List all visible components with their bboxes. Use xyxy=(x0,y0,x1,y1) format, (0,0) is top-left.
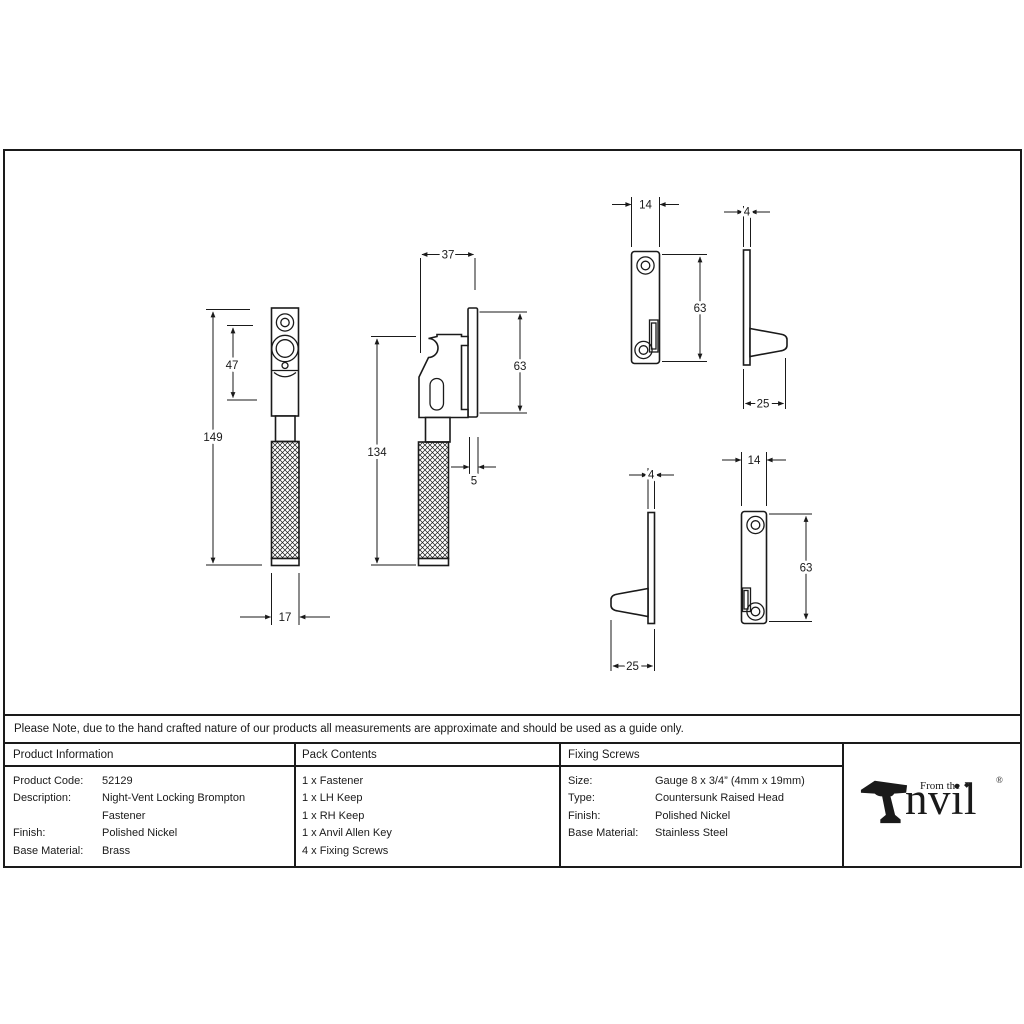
finish-label: Finish: xyxy=(13,825,102,842)
screw-type-row: Type: Countersunk Raised Head xyxy=(568,790,836,807)
pack-item: 1 x RH Keep xyxy=(302,808,552,825)
product-code-label: Product Code: xyxy=(13,773,102,790)
column-rule-3 xyxy=(842,742,844,868)
finish-row: Finish: Polished Nickel xyxy=(13,825,291,842)
column-rule-2 xyxy=(559,742,561,868)
base-material-value: Brass xyxy=(102,843,290,860)
screw-material-row: Base Material: Stainless Steel xyxy=(568,825,836,842)
sheet-border xyxy=(3,149,1022,868)
logo-prefix-text: From the◆ xyxy=(920,780,969,792)
from-the-anvil-logo: nvil From the◆ ® xyxy=(860,776,1018,828)
screw-size-row: Size: Gauge 8 x 3/4” (4mm x 19mm) xyxy=(568,773,836,790)
header-pack-contents: Pack Contents xyxy=(302,744,377,766)
diamond-icon: ◆ xyxy=(964,781,969,789)
product-information-cell: Product Code: 52129 Description: Night-V… xyxy=(13,773,291,860)
product-code-value: 52129 xyxy=(102,773,290,790)
screw-material-label: Base Material: xyxy=(568,825,655,842)
finish-value: Polished Nickel xyxy=(102,825,290,842)
description-label: Description: xyxy=(13,790,102,807)
screw-finish-row: Finish: Polished Nickel xyxy=(568,808,836,825)
pack-item: 1 x Anvil Allen Key xyxy=(302,825,552,842)
base-material-row: Base Material: Brass xyxy=(13,843,291,860)
header-fixing-screws: Fixing Screws xyxy=(568,744,640,766)
description-value: Night-Vent Locking Brompton Fastener xyxy=(102,790,290,825)
measurement-note: Please Note, due to the hand crafted nat… xyxy=(14,716,1004,743)
product-spec-sheet: 149 47 17 37 63 xyxy=(0,0,1024,1024)
pack-item: 1 x Fastener xyxy=(302,773,552,790)
pack-contents-cell: 1 x Fastener 1 x LH Keep 1 x RH Keep 1 x… xyxy=(302,773,552,860)
description-row: Description: Night-Vent Locking Brompton… xyxy=(13,790,291,825)
base-material-label: Base Material: xyxy=(13,843,102,860)
screw-material-value: Stainless Steel xyxy=(655,825,728,842)
fixing-screws-cell: Size: Gauge 8 x 3/4” (4mm x 19mm) Type: … xyxy=(568,773,836,843)
column-rule-1 xyxy=(294,742,296,868)
product-code-row: Product Code: 52129 xyxy=(13,773,291,790)
screw-type-label: Type: xyxy=(568,790,655,807)
anvil-icon xyxy=(860,777,908,825)
screw-finish-label: Finish: xyxy=(568,808,655,825)
header-bottom-rule xyxy=(3,765,844,767)
registered-mark: ® xyxy=(996,776,1003,785)
screw-size-label: Size: xyxy=(568,773,655,790)
pack-item: 4 x Fixing Screws xyxy=(302,843,552,860)
screw-type-value: Countersunk Raised Head xyxy=(655,790,784,807)
pack-item: 1 x LH Keep xyxy=(302,790,552,807)
header-product-information: Product Information xyxy=(13,744,113,766)
screw-size-value: Gauge 8 x 3/4” (4mm x 19mm) xyxy=(655,773,805,790)
screw-finish-value: Polished Nickel xyxy=(655,808,730,825)
